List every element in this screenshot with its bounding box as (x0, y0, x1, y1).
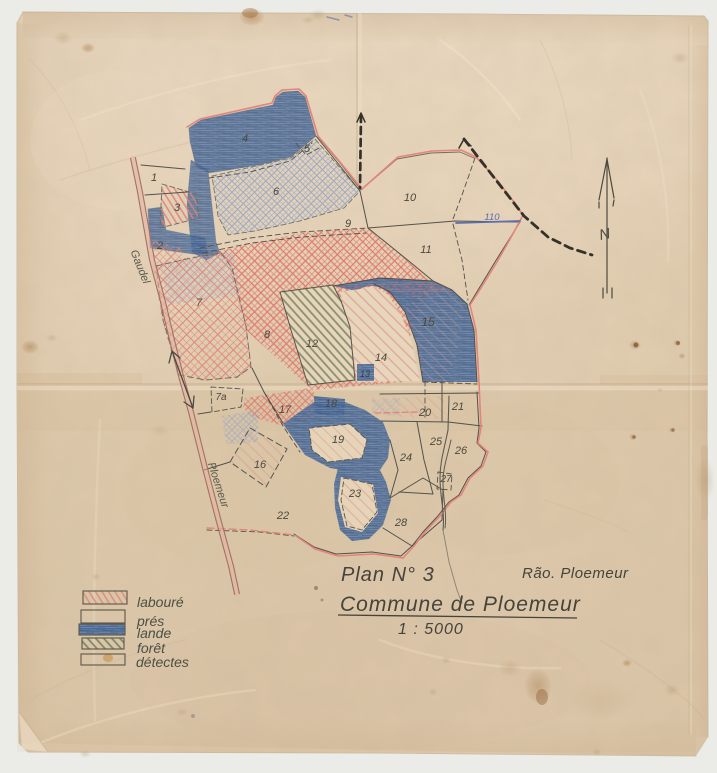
svg-text:15: 15 (421, 315, 435, 329)
svg-text:23: 23 (348, 488, 362, 500)
svg-text:labouré: labouré (137, 594, 184, 610)
svg-text:27: 27 (439, 474, 452, 485)
svg-text:9: 9 (345, 218, 351, 230)
svg-text:Commune de Ploemeur: Commune de Ploemeur (340, 593, 581, 616)
svg-text:1 : 5000: 1 : 5000 (398, 621, 464, 638)
svg-text:lande: lande (137, 625, 171, 641)
svg-text:19: 19 (332, 434, 344, 446)
svg-text:6: 6 (273, 186, 280, 198)
svg-text:13: 13 (360, 369, 370, 379)
svg-text:8: 8 (264, 329, 271, 341)
svg-text:11: 11 (420, 244, 431, 256)
svg-text:5: 5 (304, 143, 311, 155)
svg-text:22: 22 (276, 510, 289, 522)
svg-text:21: 21 (451, 401, 464, 413)
svg-text:détectes: détectes (136, 654, 189, 670)
svg-text:18: 18 (325, 398, 338, 410)
svg-text:28: 28 (394, 517, 408, 529)
svg-text:7a: 7a (215, 392, 227, 403)
svg-text:3: 3 (174, 202, 181, 214)
svg-text:24: 24 (399, 452, 412, 464)
svg-text:7: 7 (196, 297, 203, 309)
svg-text:17: 17 (279, 404, 292, 416)
svg-text:1: 1 (151, 172, 157, 184)
svg-text:10: 10 (404, 192, 417, 204)
svg-text:20: 20 (418, 407, 432, 419)
svg-text:2: 2 (156, 240, 163, 252)
svg-text:Rão. Ploemeur: Rão. Ploemeur (522, 565, 629, 582)
svg-text:14: 14 (375, 352, 387, 364)
svg-text:26: 26 (454, 445, 468, 457)
svg-text:16: 16 (254, 459, 267, 471)
svg-text:Plan N° 3: Plan N° 3 (341, 564, 435, 586)
svg-text:110: 110 (484, 212, 500, 223)
svg-text:4: 4 (242, 133, 248, 145)
svg-text:25: 25 (429, 436, 443, 448)
svg-text:12: 12 (306, 338, 318, 350)
